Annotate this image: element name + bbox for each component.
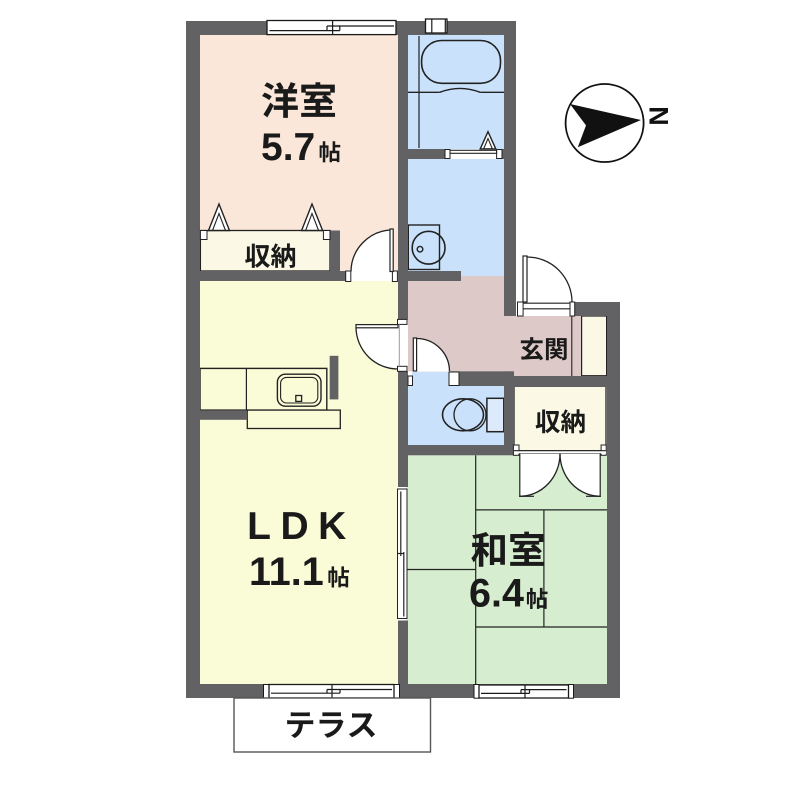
svg-text:N: N xyxy=(644,106,674,126)
svg-text:11.1: 11.1 xyxy=(249,550,324,594)
svg-text:5.7: 5.7 xyxy=(261,126,315,169)
svg-text:6.4: 6.4 xyxy=(469,572,524,616)
svg-text:LDK: LDK xyxy=(247,505,356,548)
